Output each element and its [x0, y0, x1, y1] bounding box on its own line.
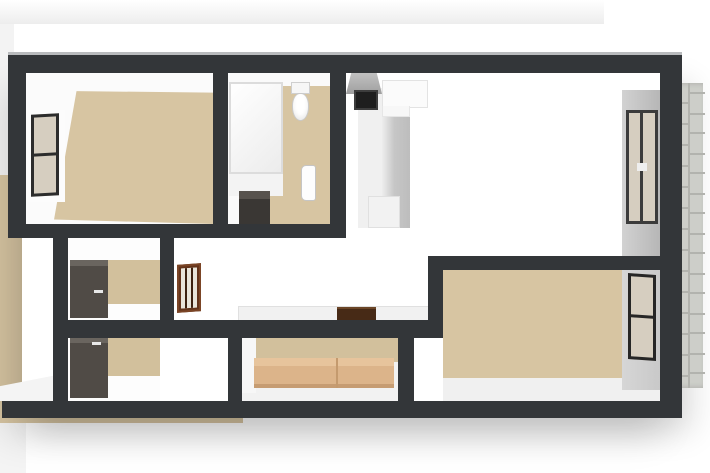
- cooktop: [354, 90, 378, 110]
- closet-door-lower: [70, 338, 108, 398]
- room-bench: [242, 338, 398, 401]
- bench-seam: [336, 358, 338, 388]
- wall-left-lower: [53, 224, 68, 401]
- wall-right: [660, 55, 682, 401]
- bathroom-sink: [301, 165, 316, 201]
- wall-bedroom-right-west-lower: [398, 333, 414, 401]
- room-closet-lower: [68, 338, 160, 401]
- closet-upper-back-wall: [106, 260, 160, 304]
- wall-bench-west: [228, 338, 242, 401]
- wall-bathroom-east: [330, 55, 346, 224]
- kitchen-upper-cabinet: [382, 80, 428, 108]
- balcony-door-handles: [637, 163, 647, 171]
- bench-seat: [254, 358, 394, 388]
- kitchen-upper-cabinet-step: [382, 106, 410, 117]
- wall-bottom: [2, 401, 682, 418]
- pass-through-hatch: [337, 307, 376, 320]
- closet-door-upper-handle: [94, 290, 103, 293]
- wall-bedroom-right-west-upper: [428, 256, 443, 333]
- wood-window-panes: [181, 267, 197, 308]
- closet-door-upper: [70, 260, 108, 318]
- shower-enclosure: [229, 82, 283, 174]
- wall-bathroom-west: [213, 55, 228, 224]
- closet-door-lower-handle: [92, 342, 101, 345]
- window-left-bedroom: [31, 113, 59, 196]
- room-bedroom-right: [443, 270, 625, 382]
- decorative-wood-window: [177, 263, 201, 313]
- hall-west-wall-face: [0, 423, 26, 473]
- toilet-bowl: [292, 93, 309, 121]
- window-left-rail: [34, 152, 56, 156]
- wall-mid-horizontal: [8, 224, 346, 238]
- north-wall-face: [0, 0, 604, 24]
- wall-hall-south: [53, 320, 443, 338]
- wall-bedroom-right-north: [428, 256, 660, 270]
- wall-left-upper: [8, 55, 26, 238]
- window-right-bedroom: [628, 273, 656, 361]
- patio-tile-column: [688, 83, 705, 388]
- closet-lower-back-wall: [106, 338, 160, 376]
- floor-plan-canvas: [0, 0, 710, 473]
- kitchen-lower-cabinet: [368, 196, 400, 228]
- washing-machine: [239, 191, 270, 227]
- room-closet-upper: [68, 238, 160, 320]
- balcony-door: [626, 110, 658, 224]
- window-right-rail: [631, 314, 653, 319]
